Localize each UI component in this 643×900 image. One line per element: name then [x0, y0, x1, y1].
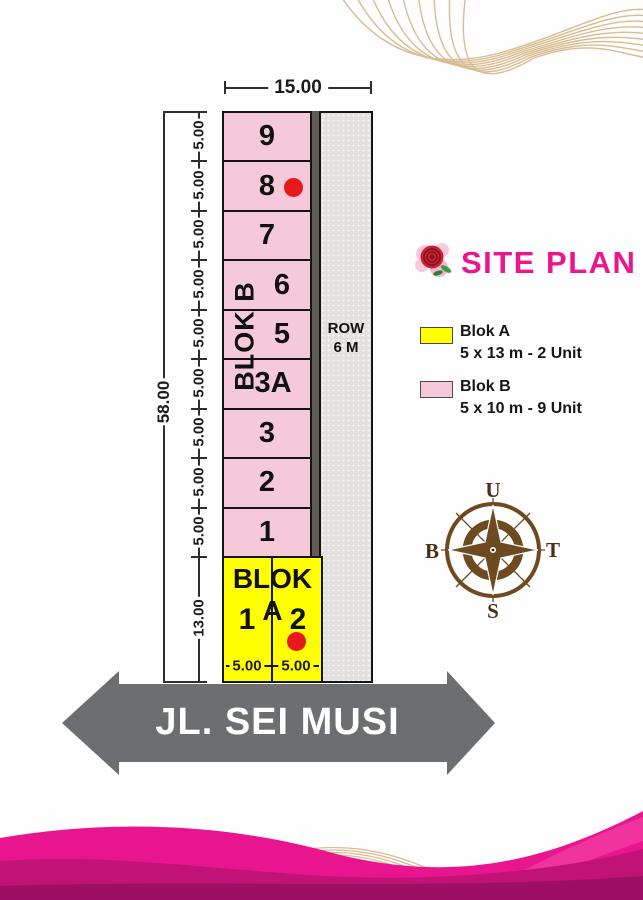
- lot-b-3: 3: [224, 410, 310, 459]
- road-label: ROW 6 M: [319, 319, 373, 357]
- page-title: SITE PLAN: [461, 245, 636, 281]
- unit-status-dot-lot-a2: [287, 632, 306, 651]
- segment-height-label: 5.00: [191, 366, 208, 399]
- segment-tick: [191, 309, 207, 311]
- bottom-wave-decoration: [0, 785, 643, 900]
- segment-tick: [191, 556, 207, 558]
- lot-a-1: 1: [222, 603, 272, 637]
- blok-a-height-label: 13.00: [191, 597, 208, 639]
- segment-height-label: 5.00: [191, 415, 208, 448]
- top-dimension-tick-left: [224, 81, 226, 94]
- lot-b-9: 9: [224, 113, 310, 162]
- top-dimension-label: 15.00: [268, 77, 328, 99]
- compass-west-label: B: [425, 539, 439, 563]
- segment-height-label: 5.00: [191, 217, 208, 250]
- legend-swatch-blok-b: [420, 381, 453, 398]
- compass-east-label: T: [546, 538, 560, 562]
- road-label-line1: ROW: [319, 319, 373, 338]
- street-name-label: JL. SEI MUSI: [70, 701, 485, 744]
- unit-status-dot-lot-b8: [284, 178, 303, 197]
- legend-blok-a-name: Blok A: [460, 323, 582, 341]
- top-dimension-tick-right: [370, 81, 372, 94]
- segment-tick: [191, 457, 207, 459]
- segment-tick: [191, 259, 207, 261]
- legend-item-blok-b: Blok B 5 x 10 m - 9 Unit: [460, 378, 582, 418]
- legend-blok-b-name: Blok B: [460, 378, 582, 396]
- road-label-line2: 6 M: [319, 338, 373, 357]
- segment-tick: [191, 111, 207, 113]
- compass-icon: U T S B: [420, 477, 566, 623]
- road-area: [319, 111, 373, 683]
- segment-height-label: 5.00: [191, 316, 208, 349]
- segment-tick: [191, 507, 207, 509]
- segment-height-label: 5.00: [191, 118, 208, 151]
- lot-b-2: 2: [224, 459, 310, 508]
- segment-tick: [191, 210, 207, 212]
- blok-b-label: BLOK B: [230, 281, 261, 391]
- compass-north-label: U: [485, 478, 500, 502]
- segment-tick: [191, 408, 207, 410]
- segment-height-label: 5.00: [191, 267, 208, 300]
- total-height-label: 58.00: [154, 379, 174, 426]
- compass-south-label: S: [487, 599, 499, 623]
- segment-height-label: 5.00: [191, 465, 208, 498]
- segment-height-label: 5.00: [191, 168, 208, 201]
- legend-blok-a-size: 5 x 13 m - 2 Unit: [460, 345, 582, 363]
- segment-height-label: 5.00: [191, 514, 208, 547]
- legend-item-blok-a: Blok A 5 x 13 m - 2 Unit: [460, 323, 582, 363]
- segment-tick: [191, 358, 207, 360]
- segment-tick: [191, 160, 207, 162]
- lot-b-7: 7: [224, 212, 310, 261]
- info-panel: SITE PLAN Blok A 5 x 13 m - 2 Unit Blok …: [400, 230, 643, 630]
- rose-logo-icon: [414, 239, 456, 281]
- lot-b-1: 1: [224, 509, 310, 556]
- legend-swatch-blok-a: [420, 327, 453, 344]
- legend-blok-b-size: 5 x 10 m - 9 Unit: [460, 400, 582, 418]
